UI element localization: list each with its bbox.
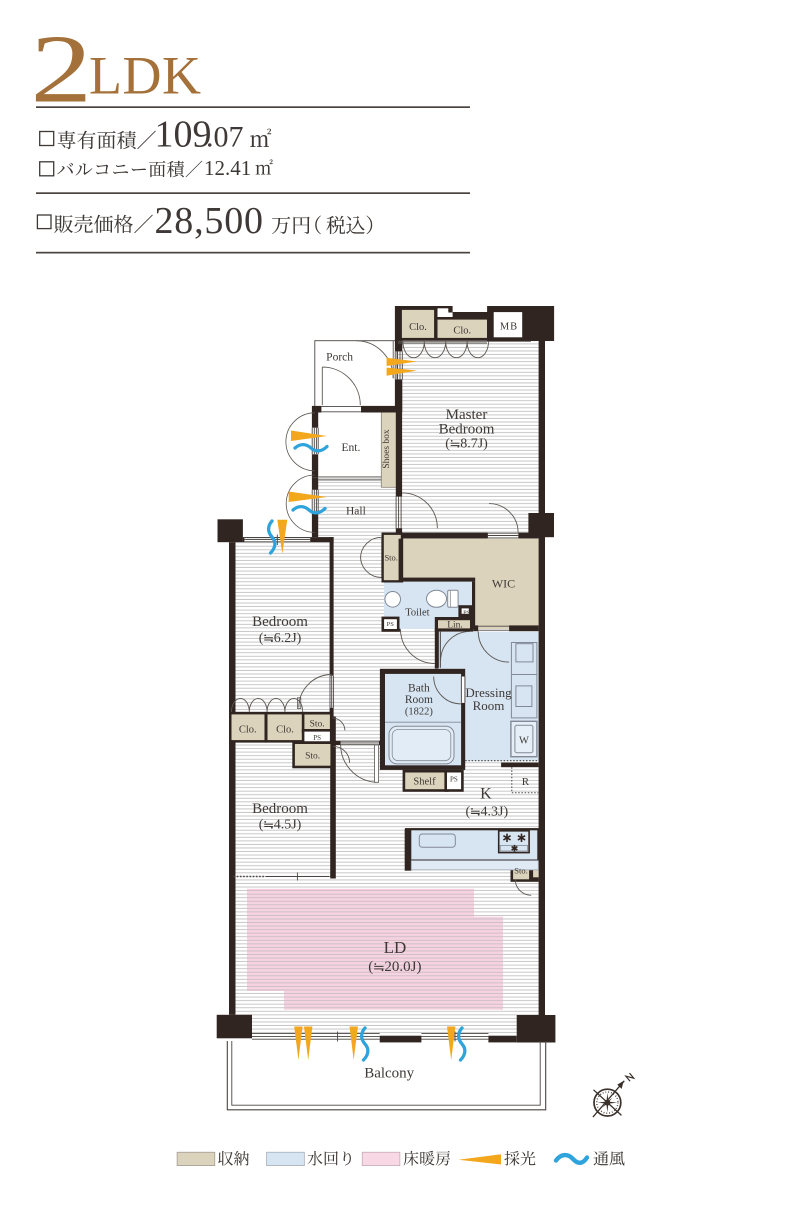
svg-text:(: ( [445,437,450,452]
svg-text:Bedroom: Bedroom [252,801,308,817]
svg-text:Clo.: Clo. [453,326,471,337]
svg-text:PS: PS [450,776,458,784]
svg-text:WIC: WIC [492,577,515,591]
svg-text:Shelf: Shelf [413,777,436,788]
svg-text:8.7J): 8.7J) [460,437,488,452]
svg-text:12.41: 12.41 [204,156,251,180]
svg-text:W: W [519,736,529,747]
svg-text:Room: Room [473,698,505,713]
svg-text:20.0J): 20.0J) [384,959,421,975]
svg-text:LDK: LDK [89,46,201,106]
svg-text:109: 109 [155,114,212,156]
svg-text:(: ( [466,805,471,820]
svg-text:(: ( [259,818,264,833]
svg-text:4.3J): 4.3J) [481,805,509,820]
svg-text:Ent.: Ent. [341,442,360,454]
svg-text:Sto.: Sto. [305,752,320,762]
svg-text:R: R [522,776,530,788]
svg-text:Room: Room [405,694,433,706]
svg-text:Bedroom: Bedroom [439,422,495,438]
svg-text:(: ( [368,959,373,975]
svg-text:Clo.: Clo. [409,322,427,333]
svg-text:Sto.: Sto. [384,553,397,563]
svg-text:K: K [480,786,492,803]
svg-text:.07: .07 [206,121,244,154]
svg-text:(: ( [259,631,264,646]
svg-text:4.5J): 4.5J) [274,818,302,833]
svg-text:PS: PS [463,610,471,617]
svg-text:Bath: Bath [408,683,430,695]
svg-text:MB: MB [500,322,518,333]
svg-text:6.2J): 6.2J) [274,631,302,646]
svg-text:LD: LD [384,938,407,957]
svg-text:28,500: 28,500 [155,200,264,242]
svg-text:Toilet: Toilet [405,608,429,619]
svg-text:Clo.: Clo. [239,725,257,736]
svg-text:Sto.: Sto. [514,866,527,876]
svg-text:Balcony: Balcony [364,1066,414,1082]
svg-text:Sto.: Sto. [310,720,325,730]
svg-text:Lin.: Lin. [447,620,463,630]
svg-text:Shoes box: Shoes box [382,429,392,469]
svg-text:Hall: Hall [346,506,366,518]
svg-text:PS: PS [313,734,321,742]
svg-text:Clo.: Clo. [276,725,294,736]
svg-text:PS: PS [387,621,395,628]
svg-text:Porch: Porch [326,352,353,364]
svg-text:Bedroom: Bedroom [252,614,308,630]
svg-text:(1822): (1822) [405,707,433,718]
